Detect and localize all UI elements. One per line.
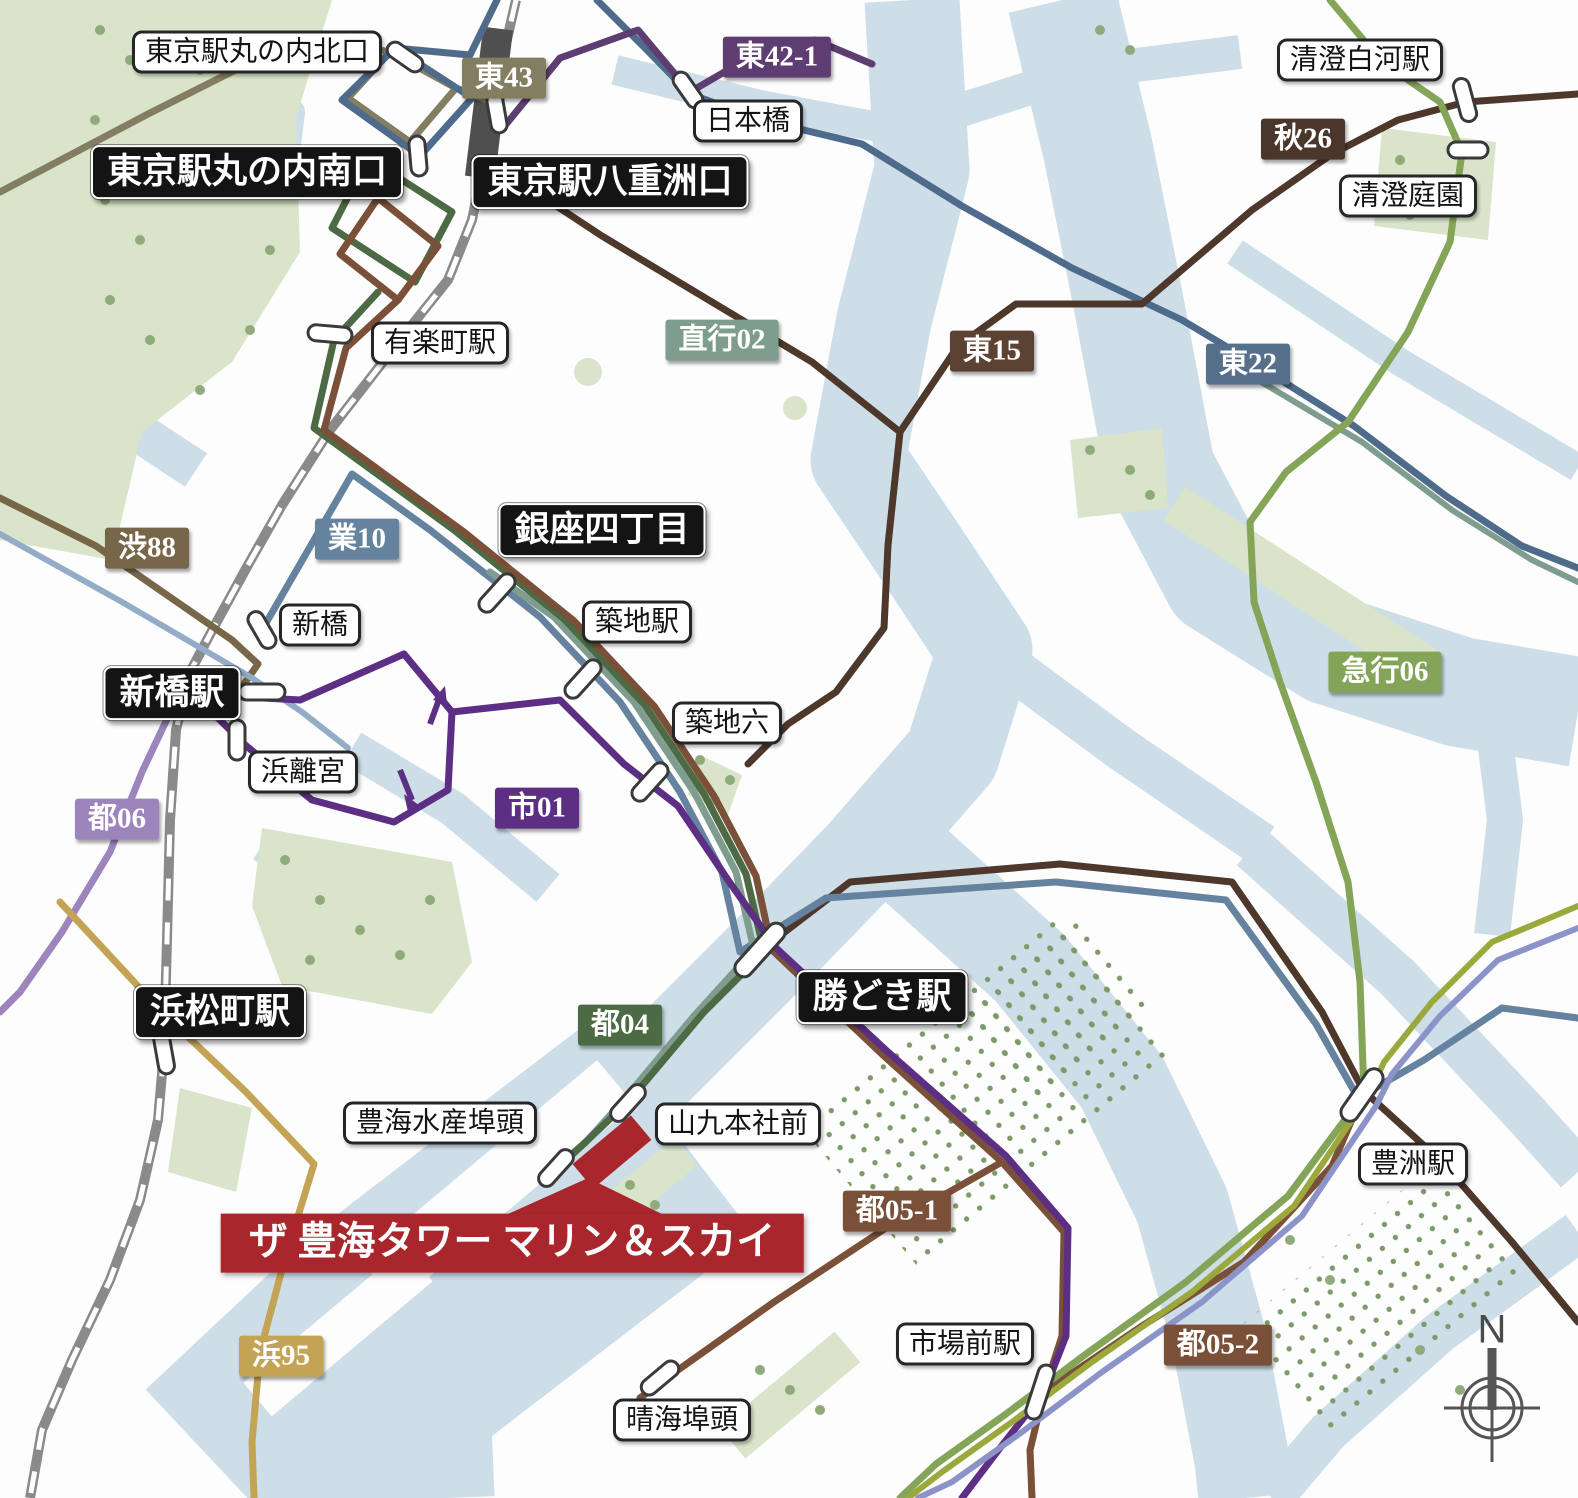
property-name-label: ザ 豊海タワー マリン＆スカイ xyxy=(221,1214,804,1273)
station-label-hamamatsucho: 浜松町駅 xyxy=(134,985,306,1039)
station-label-shijo-mae: 市場前駅 xyxy=(896,1323,1034,1366)
route-badge-hama95: 浜95 xyxy=(239,1336,323,1377)
route-badge-to04: 都04 xyxy=(578,1005,662,1046)
bus-stop-marker xyxy=(239,684,285,700)
route-badge-aki26: 秋26 xyxy=(1261,119,1345,160)
station-label-toyomi-suisan-futo: 豊海水産埠頭 xyxy=(343,1102,537,1145)
route-badge-to06: 都06 xyxy=(75,799,159,840)
route-to06-line xyxy=(0,700,176,1012)
bus-stop-marker xyxy=(1452,77,1479,124)
station-label-toyosu: 豊洲駅 xyxy=(1358,1143,1468,1186)
route-badge-chokko02: 直行02 xyxy=(665,320,778,361)
station-label-harumi-futo: 晴海埠頭 xyxy=(613,1399,751,1442)
station-label-nihonbashi: 日本橋 xyxy=(693,100,803,143)
route-badge-gyo10: 業10 xyxy=(315,519,399,560)
compass-north-icon xyxy=(1444,1348,1540,1462)
route-badge-shibu88: 渋88 xyxy=(105,528,189,569)
station-label-tokyo-marunouchi-south: 東京駅丸の内南口 xyxy=(91,145,403,199)
station-label-shimbashi: 新橋 xyxy=(279,604,361,647)
route-badge-to43: 東43 xyxy=(462,58,546,99)
station-label-yurakucho: 有楽町駅 xyxy=(371,322,509,365)
route-badge-to15: 東15 xyxy=(950,331,1034,372)
route-badge-to22: 東22 xyxy=(1206,344,1290,385)
bus-stop-marker xyxy=(229,720,245,760)
station-label-tsukiji-6: 築地六 xyxy=(672,702,782,745)
bus-stop-marker xyxy=(307,324,352,344)
station-label-ginza-4chome: 銀座四丁目 xyxy=(498,503,705,557)
route-badge-to42-1: 東42-1 xyxy=(723,37,831,78)
bus-stop-marker xyxy=(1448,142,1488,158)
station-label-tokyo-marunouchi-north: 東京駅丸の内北口 xyxy=(132,31,382,74)
compass-north-label: N xyxy=(1478,1308,1507,1353)
station-label-hamarikyu: 浜離宮 xyxy=(248,751,358,794)
bus-stop-marker xyxy=(384,39,426,75)
transit-map: 東京駅丸の内北口 東京駅丸の内南口 東京駅八重洲口 日本橋 清澄白河駅 清澄庭園… xyxy=(0,0,1578,1498)
route-badge-to05-2: 都05-2 xyxy=(1164,1325,1272,1366)
route-badge-shi01: 市01 xyxy=(495,788,579,829)
station-label-tsukiji: 築地駅 xyxy=(582,601,692,644)
route-badge-to05-1: 都05-1 xyxy=(843,1191,951,1232)
station-label-kachidoki: 勝どき駅 xyxy=(797,970,968,1024)
station-label-tokyo-yaesu: 東京駅八重洲口 xyxy=(471,155,748,209)
station-label-kiyosumi-teien: 清澄庭園 xyxy=(1339,175,1477,218)
map-canvas xyxy=(0,0,1578,1498)
route-badge-kyuko06: 急行06 xyxy=(1328,652,1441,693)
bus-stop-marker xyxy=(408,135,427,176)
station-label-sankyu-honsha-mae: 山九本社前 xyxy=(655,1103,821,1146)
station-label-shimbashi-sta: 新橋駅 xyxy=(103,666,240,720)
station-label-kiyosumi-shirakawa: 清澄白河駅 xyxy=(1277,39,1443,82)
